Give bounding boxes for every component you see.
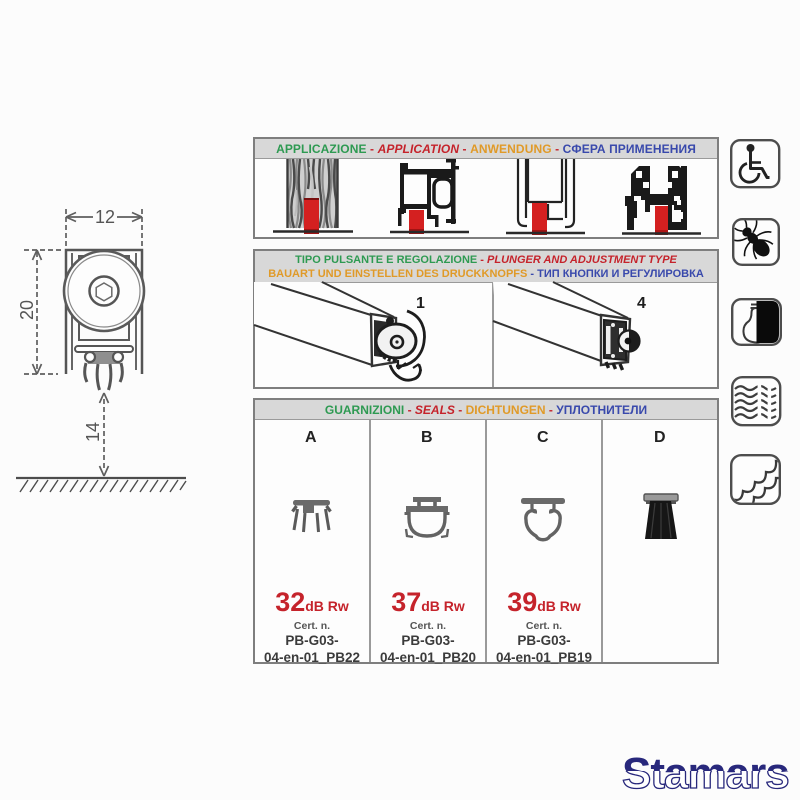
svg-text:20: 20 [17,300,37,320]
svg-text:4: 4 [637,295,646,312]
svg-text:1: 1 [416,295,425,312]
svg-text:14: 14 [83,422,103,442]
svg-text:12: 12 [95,207,115,227]
